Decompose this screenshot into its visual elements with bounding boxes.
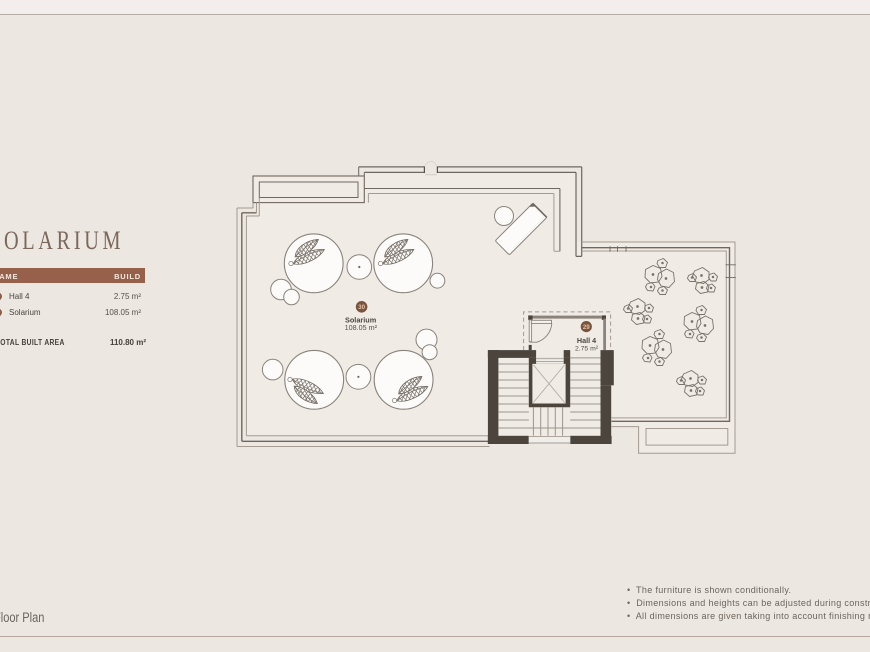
svg-text:Hall 4: Hall 4 xyxy=(577,336,596,345)
svg-text:30: 30 xyxy=(358,304,365,311)
svg-text:108.05 m²: 108.05 m² xyxy=(345,323,378,332)
svg-text:29: 29 xyxy=(583,324,590,331)
svg-text:2.75 m²: 2.75 m² xyxy=(575,345,599,352)
